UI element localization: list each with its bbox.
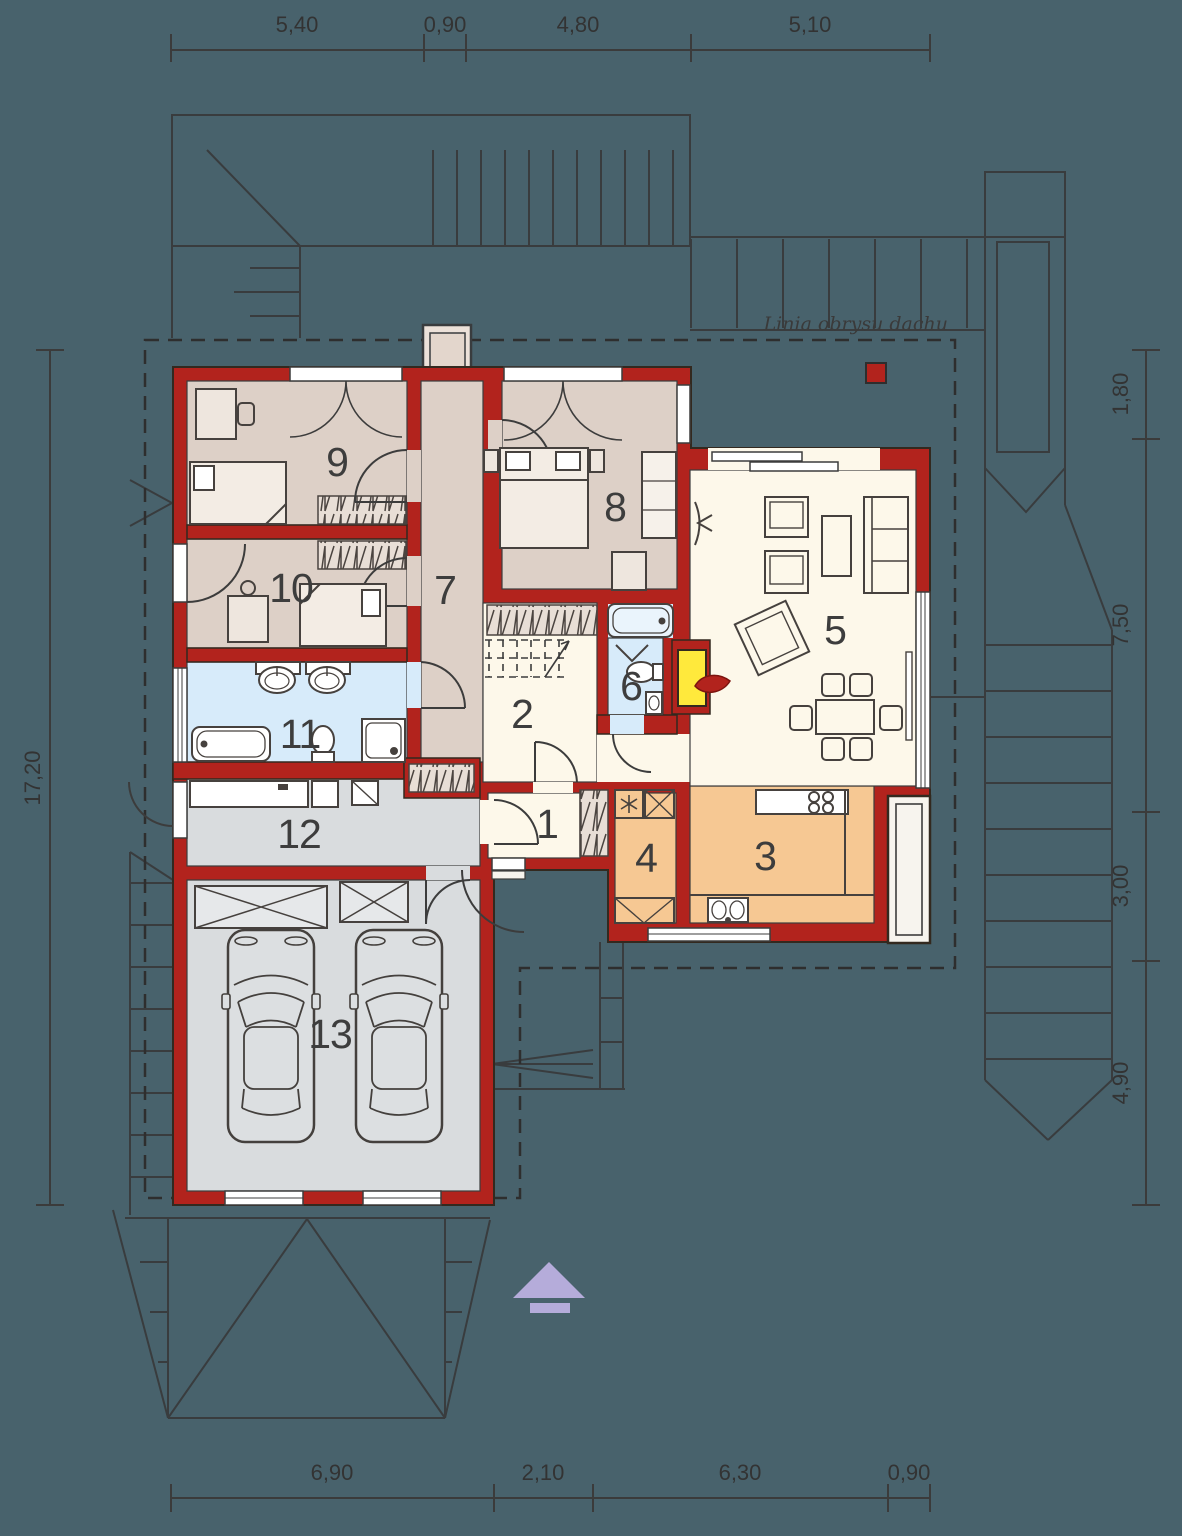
room-10-label: 10 [269, 565, 313, 611]
dim-bottom-4: 0,90 [888, 1460, 931, 1485]
room-13-label: 13 [308, 1011, 352, 1057]
room-8-label: 8 [604, 484, 626, 530]
storage-rack-icon [340, 882, 408, 922]
room-2-label: 2 [511, 691, 533, 737]
dim-right-3: 3,00 [1108, 865, 1133, 908]
desk-icon [228, 596, 268, 642]
desk-icon [612, 552, 646, 590]
room-9-label: 9 [326, 439, 348, 485]
double-bed-icon [500, 448, 588, 548]
room-1-label: 1 [536, 801, 558, 847]
car-icon [222, 930, 320, 1142]
wardrobe-icon [409, 764, 474, 792]
room-3-label: 3 [754, 833, 776, 879]
counter-icon [190, 781, 308, 807]
dim-bottom-2: 2,10 [522, 1460, 565, 1485]
fridge-icon [615, 790, 643, 818]
room-6-label: 6 [620, 663, 642, 709]
boiler-icon [352, 781, 378, 805]
window-living-top [708, 448, 880, 471]
sink-icon [708, 898, 748, 922]
wardrobe-icon [487, 605, 597, 635]
sink-icon [646, 692, 662, 714]
dim-top-4: 5,10 [789, 12, 832, 37]
garage-door-left [225, 1191, 303, 1205]
room-11-label: 11 [280, 711, 321, 757]
bathtub-icon [192, 727, 270, 761]
dim-right-4: 4,90 [1108, 1062, 1133, 1105]
dim-top-3: 4,80 [557, 12, 600, 37]
desk-icon [196, 389, 236, 439]
roof-outline-label: Linia obrysu dachu [763, 313, 948, 335]
bay-window-kitchen [888, 796, 930, 943]
bed-icon [300, 584, 386, 646]
room-12-label: 12 [277, 811, 321, 857]
dim-bottom-3: 6,30 [719, 1460, 762, 1485]
bathtub-icon [608, 604, 673, 637]
washing-machine-icon [312, 781, 338, 807]
floor-plan-sheet: Linia obrysu dachu [0, 0, 1182, 1536]
wardrobe-icon [580, 790, 608, 856]
dim-right-1: 1,80 [1108, 373, 1133, 416]
radiator-icon [906, 652, 912, 740]
floor-plan-drawing: Linia obrysu dachu [0, 0, 1182, 1536]
shower-icon [362, 719, 405, 762]
garage-door-right [363, 1191, 441, 1205]
window-living-right [916, 592, 930, 788]
double-bed-icon [190, 462, 286, 524]
window-room8-right [677, 385, 690, 443]
car-icon [350, 930, 448, 1142]
chimney-marker [866, 363, 886, 383]
dim-top-2: 0,90 [424, 12, 467, 37]
dim-bottom-1: 6,90 [311, 1460, 354, 1485]
wardrobe-icon [318, 541, 406, 569]
window-bathroom-left [173, 668, 187, 762]
wardrobe-icon [318, 496, 406, 524]
hall-living-passage [597, 734, 690, 782]
room-4-label: 4 [635, 835, 657, 881]
room-5-label: 5 [824, 607, 846, 653]
window-kitchen-bottom [648, 928, 770, 941]
dim-top-1: 5,40 [276, 12, 319, 37]
closet-icon [642, 452, 676, 538]
dim-left-1: 17,20 [20, 750, 45, 805]
storage-rack-icon [195, 886, 327, 928]
dim-right-2: 7,50 [1108, 604, 1133, 647]
room-7-label: 7 [434, 567, 456, 613]
